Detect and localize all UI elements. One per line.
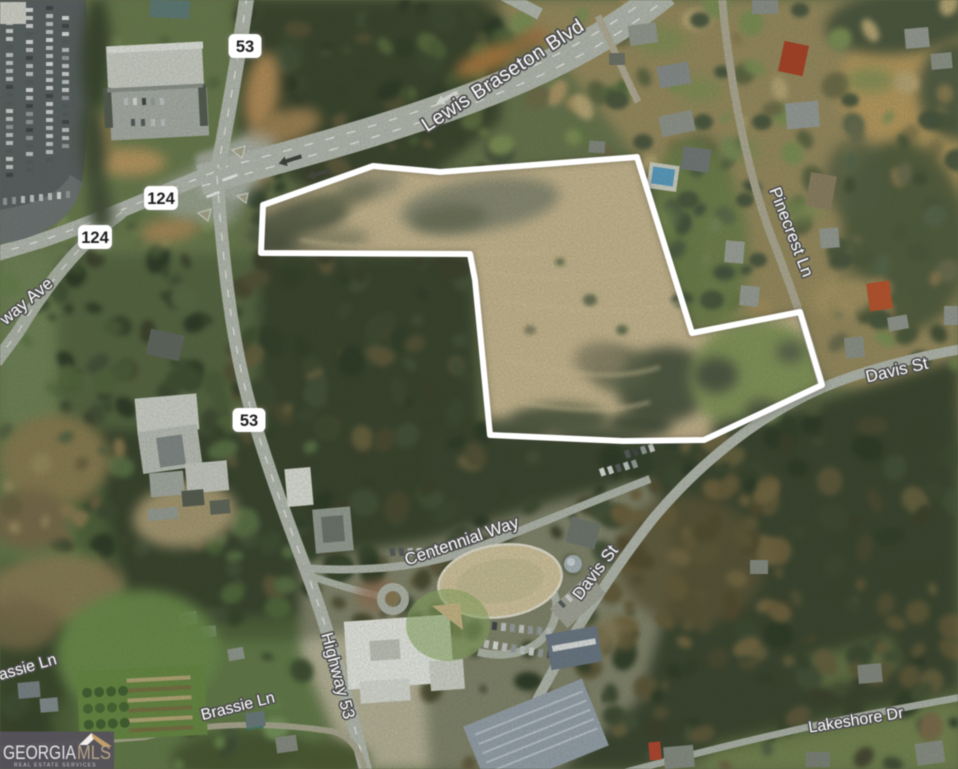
svg-text:124: 124 — [147, 190, 175, 208]
svg-text:GEORGIA: GEORGIA — [3, 742, 76, 764]
svg-text:53: 53 — [236, 38, 254, 56]
svg-text:124: 124 — [81, 229, 109, 247]
svg-text:REAL ESTATE SERVICES: REAL ESTATE SERVICES — [14, 763, 97, 769]
svg-text:53: 53 — [240, 412, 258, 430]
